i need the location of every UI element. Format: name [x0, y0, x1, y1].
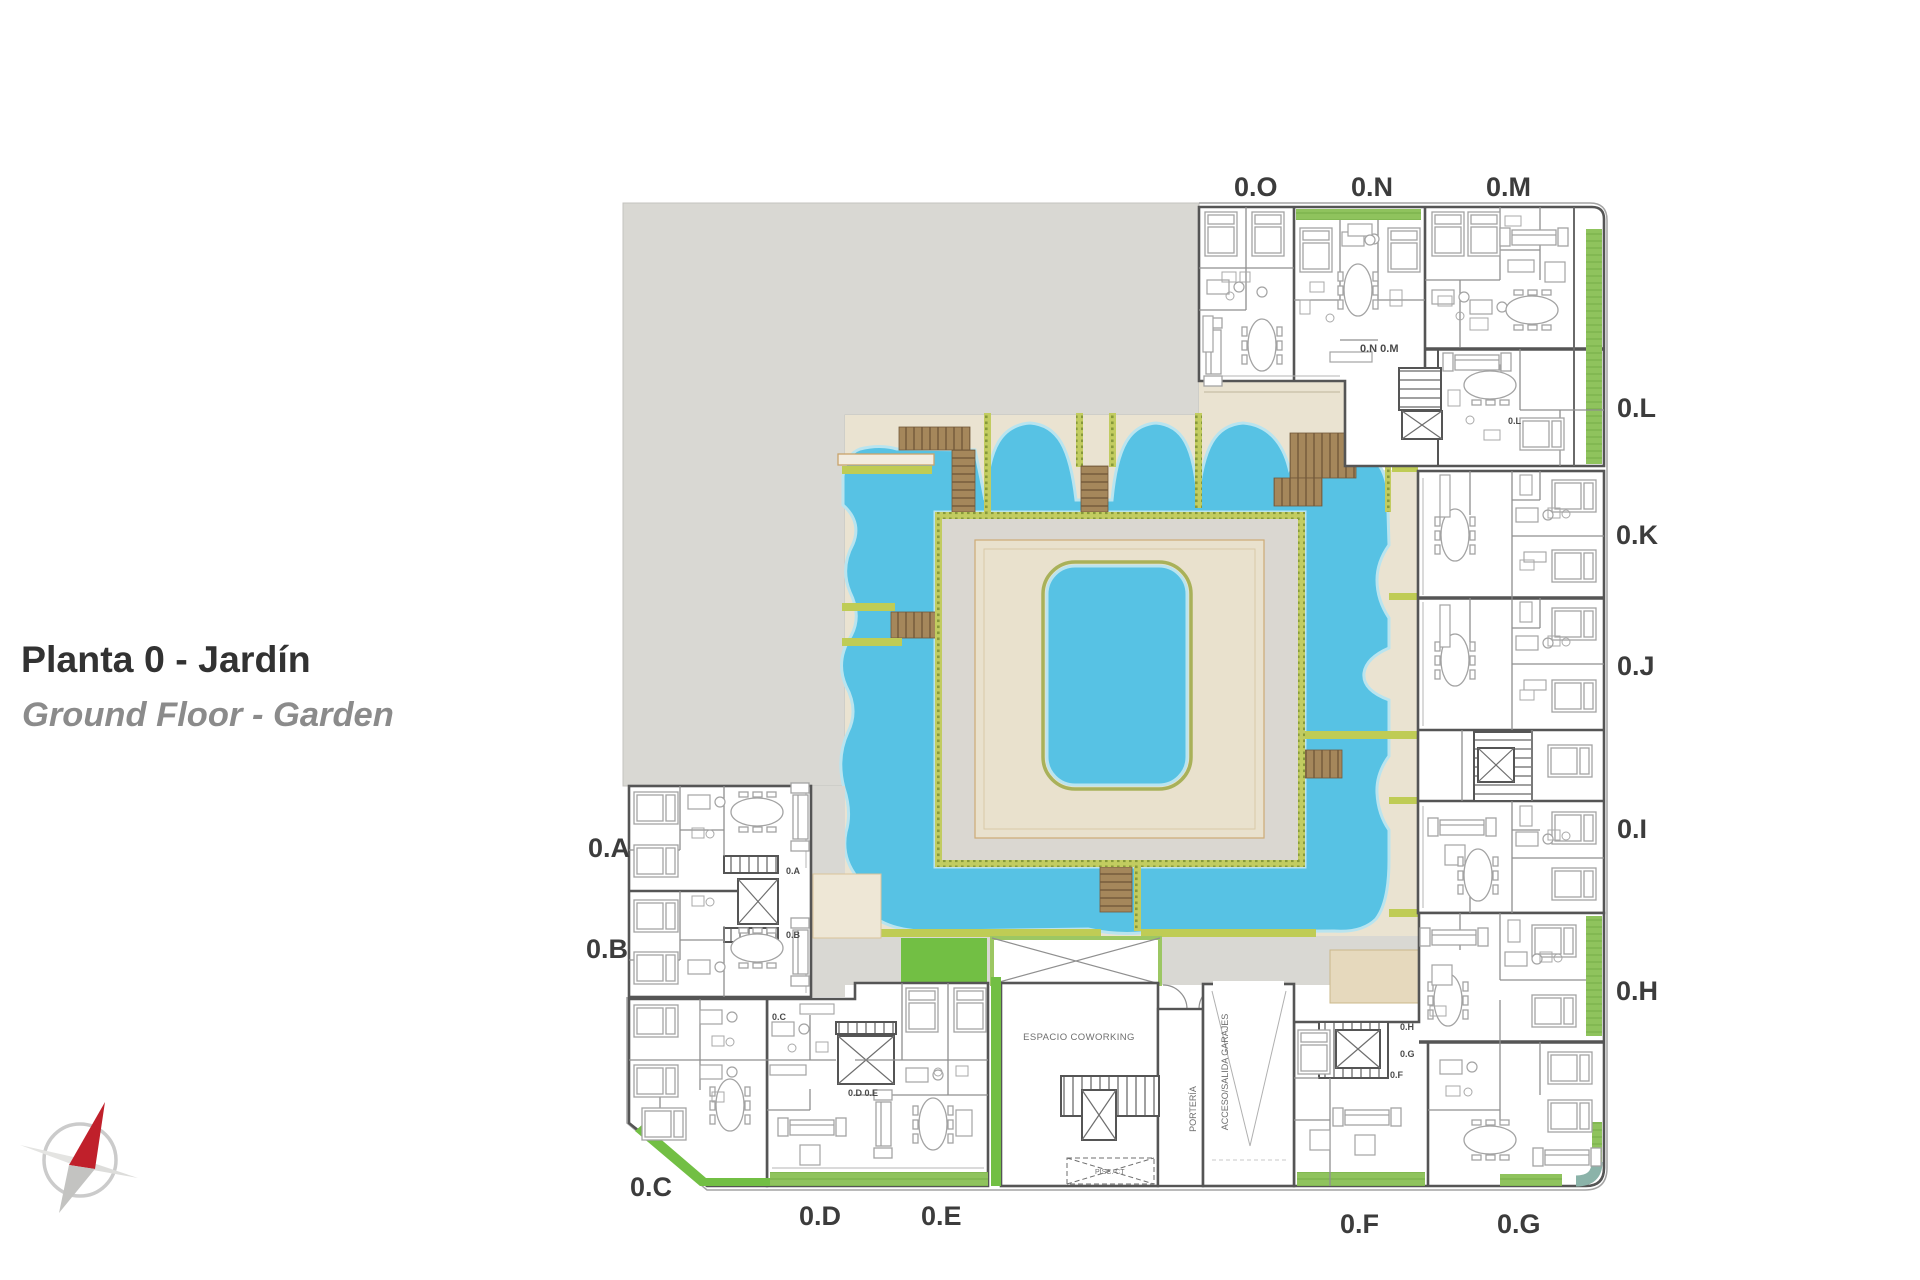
svg-text:0.D 0.E: 0.D 0.E [848, 1088, 878, 1098]
svg-text:0.F: 0.F [1340, 1209, 1379, 1239]
svg-text:0.C: 0.C [772, 1012, 787, 1022]
svg-text:0.E: 0.E [921, 1201, 962, 1231]
svg-text:0.L: 0.L [1508, 416, 1522, 426]
svg-text:Ground Floor - Garden: Ground Floor - Garden [22, 696, 394, 734]
svg-text:0.A: 0.A [786, 866, 801, 876]
svg-text:0.N: 0.N [1351, 172, 1393, 202]
svg-text:0.G: 0.G [1497, 1209, 1541, 1239]
svg-text:0.O: 0.O [1234, 172, 1278, 202]
svg-text:0.J: 0.J [1617, 651, 1655, 681]
svg-text:0.C: 0.C [630, 1172, 672, 1202]
svg-text:Planta 0 - Jardín: Planta 0 - Jardín [21, 638, 311, 680]
svg-text:PORTERÍA: PORTERÍA [1188, 1086, 1198, 1132]
svg-text:0.M: 0.M [1486, 172, 1531, 202]
svg-text:0.D: 0.D [799, 1201, 841, 1231]
svg-text:0.I: 0.I [1617, 814, 1647, 844]
svg-text:0.A: 0.A [588, 833, 630, 863]
svg-text:0.F: 0.F [1390, 1070, 1404, 1080]
svg-text:0.G: 0.G [1400, 1049, 1415, 1059]
svg-text:0.B: 0.B [586, 934, 628, 964]
svg-text:0.B: 0.B [786, 930, 801, 940]
svg-text:ACCESO/SALIDA GARAJES: ACCESO/SALIDA GARAJES [1220, 1014, 1230, 1131]
svg-text:PISC. CT: PISC. CT [1095, 1169, 1125, 1176]
svg-text:ESPACIO COWORKING: ESPACIO COWORKING [1023, 1032, 1135, 1043]
svg-text:0.H: 0.H [1400, 1022, 1414, 1032]
svg-text:0.L: 0.L [1617, 393, 1656, 423]
svg-text:0.K: 0.K [1616, 520, 1659, 550]
svg-text:0.N 0.M: 0.N 0.M [1360, 343, 1399, 355]
svg-text:0.H: 0.H [1616, 976, 1658, 1006]
